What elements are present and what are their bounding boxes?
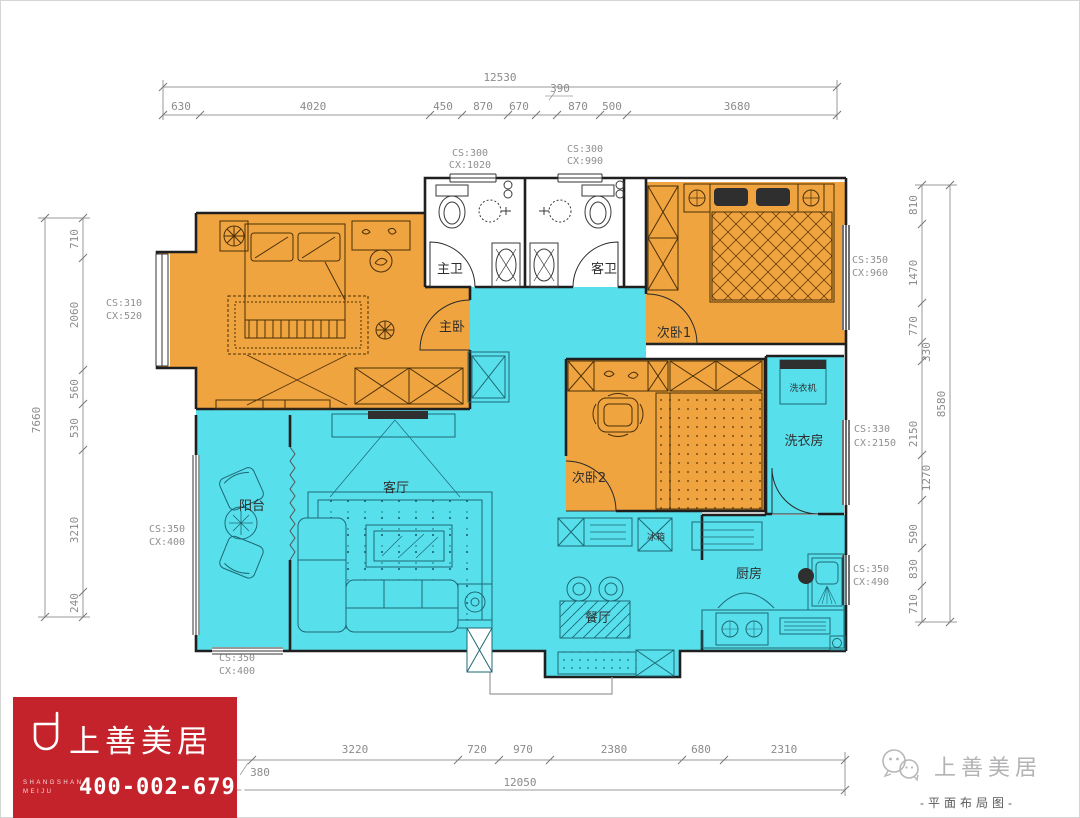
wcode-balcony-bottom-cx: CX:400 <box>219 666 255 677</box>
dim-top-0: 630 <box>171 100 191 113</box>
brand-name-en-line1: SHANGSHAN <box>23 779 79 788</box>
laundry-window <box>842 420 850 505</box>
wcode-laundry-cx: CX:2150 <box>854 438 896 449</box>
washing-machine-panel <box>780 360 826 369</box>
dim-left-3: 530 <box>68 418 81 438</box>
wcode-guest-bath-cs: CS:300 <box>567 144 603 155</box>
dim-right-4: 2150 <box>907 421 920 448</box>
dim-top-4: 670 <box>509 100 529 113</box>
fan-blades-icon <box>224 226 244 246</box>
dim-bottom-1: 720 <box>467 743 487 756</box>
dim-top-3: 870 <box>473 100 493 113</box>
bedroom1-pillow-right <box>756 188 790 206</box>
dim-left-5: 240 <box>68 593 81 613</box>
floorplan-drawing: 主卧 主卫 客卫 次卧1 次卧2 洗衣房 洗衣机 阳台 客厅 餐厅 厨房 冰箱 … <box>0 0 1080 818</box>
wechat-icon <box>878 746 926 786</box>
label-master-bedroom: 主卧 <box>439 320 465 335</box>
dim-left-2: 560 <box>68 379 81 399</box>
dim-right-2: 770 <box>907 316 920 336</box>
dim-bottom-5: 2310 <box>771 743 798 756</box>
dim-top-1: 4020 <box>300 100 327 113</box>
wcode-kitchen-cs: CS:350 <box>853 564 889 575</box>
label-dining: 餐厅 <box>585 610 611 626</box>
label-balcony: 阳台 <box>239 499 265 514</box>
tatami-bed <box>656 393 762 509</box>
bay-window <box>154 254 170 366</box>
brand-name-en: SHANGSHAN MEIJU <box>23 779 79 797</box>
kitchen-window <box>842 555 850 605</box>
sofa-seats <box>346 580 458 632</box>
footer-brand-name: 上善美居 <box>934 750 1042 782</box>
wcode-balcony-side-cs: CS:350 <box>149 524 185 535</box>
label-master-bath: 主卫 <box>437 262 463 277</box>
dim-top-6: 870 <box>568 100 588 113</box>
label-living: 客厅 <box>383 480 409 496</box>
brand-name-cn: 上善美居 <box>69 716 213 761</box>
bedroom1-bed-cover <box>712 212 832 300</box>
dim-left-0: 710 <box>68 229 81 249</box>
corridor-floor <box>470 287 566 415</box>
label-guest-bath: 客卫 <box>591 261 617 277</box>
dim-bottom-4: 680 <box>691 743 711 756</box>
bedroom1-window <box>842 225 850 330</box>
brand-name-en-line2: MEIJU <box>23 788 79 797</box>
dim-right-6: 590 <box>907 524 920 544</box>
wcode-kitchen-cx: CX:490 <box>853 577 889 588</box>
wcode-master-bath-cs: CS:300 <box>452 148 488 159</box>
dim-bottom-0: 3220 <box>342 743 369 756</box>
wcode-balcony-side-cx: CX:400 <box>149 537 185 548</box>
dim-bottom-3: 2380 <box>601 743 628 756</box>
dim-right-8: 710 <box>907 594 920 614</box>
dim-bottom-total: 12050 <box>503 776 536 789</box>
dim-bottom-pre: 380 <box>250 766 270 779</box>
dim-top-2: 450 <box>433 100 453 113</box>
label-bedroom1: 次卧1 <box>657 325 691 341</box>
left-ticks <box>41 214 87 621</box>
dim-right-1: 1470 <box>907 260 920 287</box>
dim-top-8: 3680 <box>724 100 751 113</box>
wcode-master-bay-cx: CX:520 <box>106 311 142 322</box>
master-bedroom-floor <box>157 213 470 409</box>
brand-phone: 400-002-6791 <box>79 775 250 800</box>
dim-top-total: 12530 <box>483 71 516 84</box>
label-laundry: 洗衣房 <box>784 433 823 449</box>
sofa-chaise <box>298 518 346 632</box>
brand-logo-block: 上善美居 SHANGSHAN MEIJU 400-002-6791 <box>13 697 237 818</box>
faucet-icon <box>798 568 814 584</box>
wcode-balcony-bottom-cs: CS:350 <box>219 653 255 664</box>
wcode-laundry-cs: CS:330 <box>854 424 890 435</box>
dim-right-3: 330 <box>920 342 933 362</box>
label-kitchen: 厨房 <box>736 566 762 582</box>
dim-top-5: 390 <box>550 82 570 95</box>
dim-top-7: 500 <box>602 100 622 113</box>
wcode-guest-bath-cx: CX:990 <box>567 156 603 167</box>
wcode-bedroom1-cx: CX:960 <box>852 268 888 279</box>
wcode-bedroom1-cs: CS:350 <box>852 255 888 266</box>
wcode-master-bath-cx: CX:1020 <box>449 160 491 171</box>
dim-bottom-2: 970 <box>513 743 533 756</box>
dim-left-total: 7660 <box>30 407 43 434</box>
footer-brand: 上善美居 -平面布局图- <box>878 746 1058 811</box>
entry-cabinet-dotted <box>558 652 636 674</box>
floorplan-page: 主卧 主卫 客卫 次卧1 次卧2 洗衣房 洗衣机 阳台 客厅 餐厅 厨房 冰箱 … <box>0 0 1080 818</box>
dim-right-total: 8580 <box>935 391 948 418</box>
label-washing-machine: 洗衣机 <box>789 382 816 394</box>
dim-left-1: 2060 <box>68 302 81 329</box>
balcony-side-window <box>192 455 200 635</box>
bottom-ticks <box>228 756 849 794</box>
guest-bath-window <box>558 172 602 184</box>
dim-right-7: 830 <box>907 559 920 579</box>
master-bath-window <box>450 172 496 184</box>
tv-set <box>368 411 428 419</box>
footer-caption: -平面布局图- <box>878 794 1058 811</box>
brand-logo-mark-icon <box>23 709 69 767</box>
label-fridge: 冰箱 <box>647 531 665 543</box>
dim-left-4: 3210 <box>68 517 81 544</box>
label-bedroom2: 次卧2 <box>572 470 606 486</box>
wcode-master-bay-cs: CS:310 <box>106 298 142 309</box>
dim-right-5: 1270 <box>920 465 933 492</box>
kitchen-floor <box>702 515 846 651</box>
dim-right-0: 810 <box>907 195 920 215</box>
bedroom1-pillow-left <box>714 188 748 206</box>
